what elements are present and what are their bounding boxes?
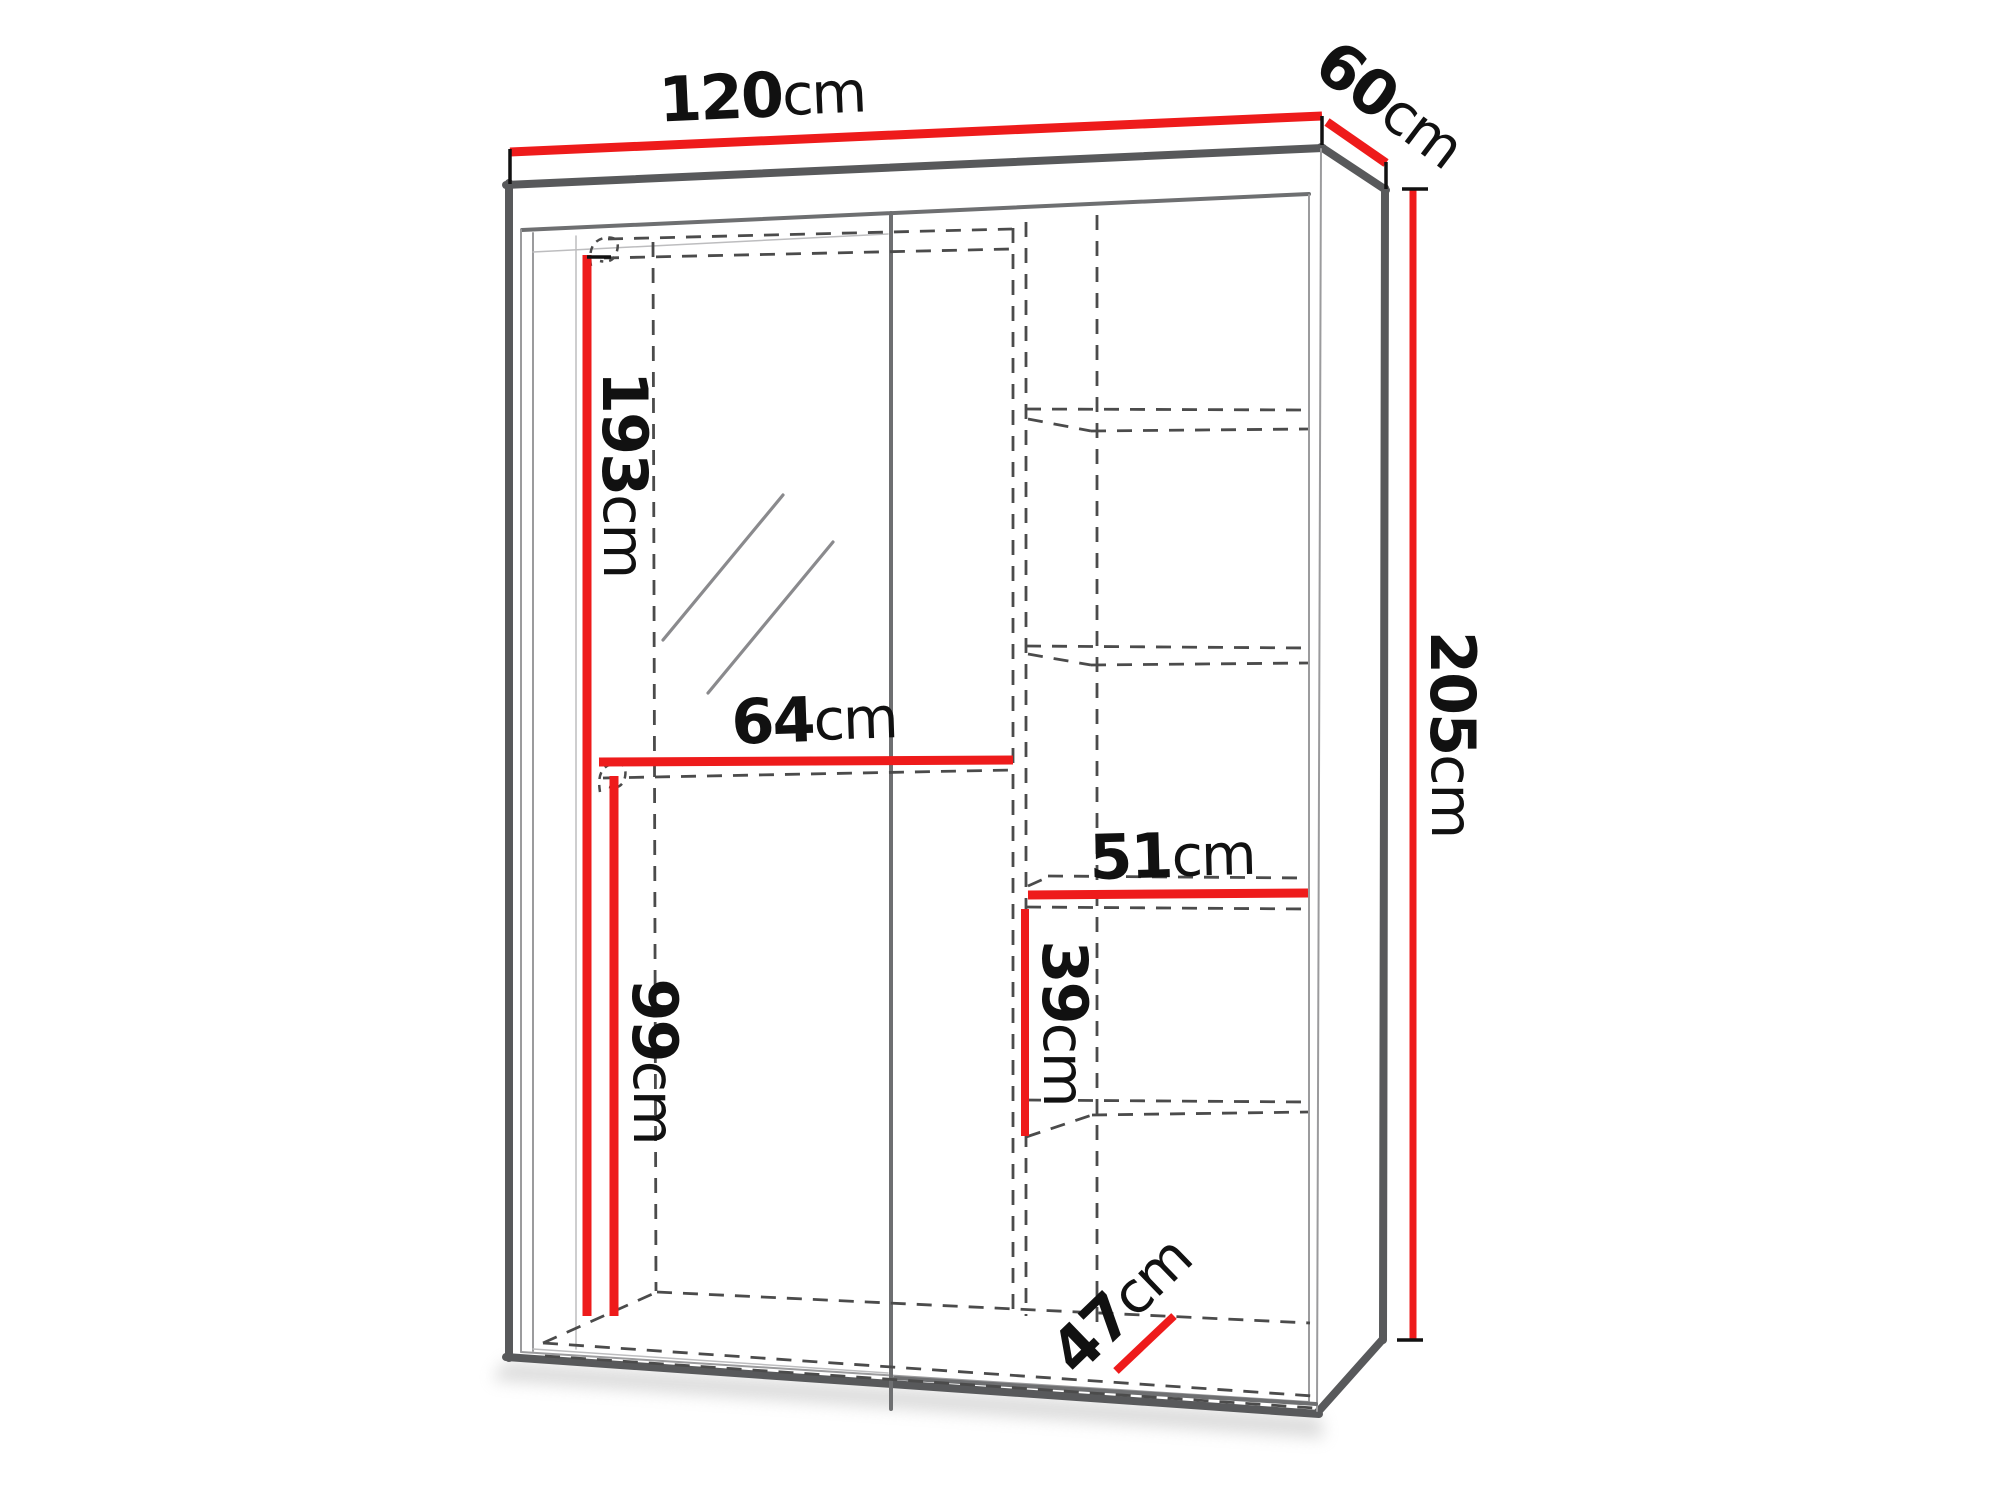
label-overall-width: 120cm: [657, 54, 866, 136]
label-overall-height: 205cm: [1416, 631, 1489, 837]
wardrobe-dimension-diagram: 120cm 60cm 205cm 193cm 64cm 51cm 39cm 99…: [0, 0, 2000, 1500]
front-face: [509, 147, 1321, 1412]
wardrobe-body: [506, 147, 1386, 1414]
label-rail-width: 64cm: [730, 680, 898, 759]
dim-line-shelf-51: [1028, 893, 1308, 895]
right-outer-edge: [1383, 188, 1385, 1340]
label-shelf-width: 51cm: [1088, 817, 1255, 894]
diagram-canvas: 120cm 60cm 205cm 193cm 64cm 51cm 39cm 99…: [0, 0, 2000, 1500]
label-hanging-height: 193cm: [588, 371, 661, 577]
dim-line-rail-64: [599, 760, 1013, 762]
label-shelf-spacing: 39cm: [1028, 940, 1101, 1105]
label-lower-height: 99cm: [618, 978, 691, 1143]
dim-line-width-120: [510, 116, 1322, 152]
side-face: [1317, 147, 1385, 1412]
